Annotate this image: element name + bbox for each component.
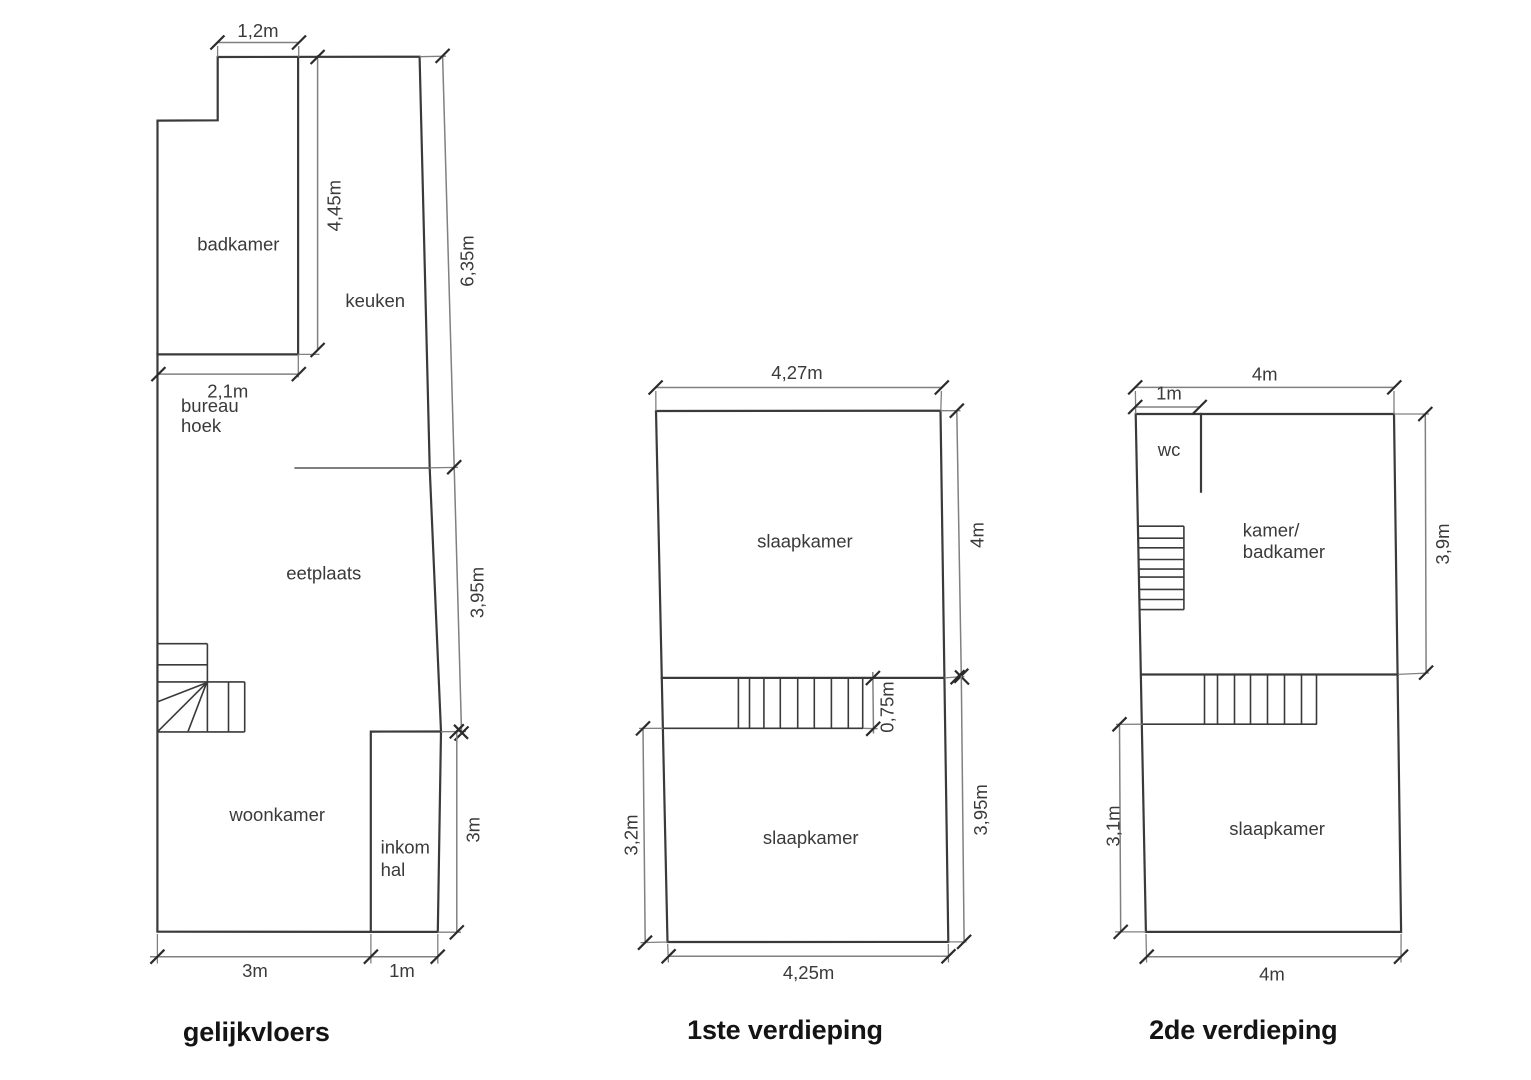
svg-text:slaapkamer: slaapkamer [763,827,859,848]
svg-text:keuken: keuken [345,290,405,311]
svg-text:1ste verdieping: 1ste verdieping [687,1015,883,1045]
svg-text:badkamer: badkamer [1243,541,1325,562]
svg-text:gelijkvloers: gelijkvloers [183,1017,330,1047]
svg-text:slaapkamer: slaapkamer [1229,818,1325,839]
svg-text:2de verdieping: 2de verdieping [1149,1015,1337,1045]
svg-text:1,2m: 1,2m [237,20,278,41]
svg-text:inkom: inkom [381,837,430,858]
svg-text:4m: 4m [1259,964,1285,985]
svg-text:kamer/: kamer/ [1243,520,1300,541]
svg-text:wc: wc [1157,439,1181,460]
svg-text:4m: 4m [1252,364,1278,385]
svg-text:3m: 3m [242,960,268,981]
svg-text:3,95m: 3,95m [467,567,488,618]
svg-text:3,95m: 3,95m [970,784,991,835]
svg-text:4m: 4m [967,522,988,548]
svg-text:3,9m: 3,9m [1432,523,1453,564]
svg-text:3m: 3m [463,817,484,843]
svg-text:badkamer: badkamer [197,234,279,255]
svg-text:0,75m: 0,75m [876,681,897,732]
svg-text:hal: hal [381,859,406,880]
svg-text:eetplaats: eetplaats [286,562,361,583]
svg-text:1m: 1m [1156,382,1182,403]
svg-text:hoek: hoek [181,415,222,436]
svg-text:woonkamer: woonkamer [228,804,325,825]
svg-text:4,45m: 4,45m [324,180,345,231]
svg-text:4,27m: 4,27m [771,362,822,383]
svg-text:6,35m: 6,35m [456,235,477,286]
svg-text:2,1m: 2,1m [207,381,248,402]
svg-text:1m: 1m [389,960,415,981]
svg-text:4,25m: 4,25m [783,962,834,983]
svg-text:slaapkamer: slaapkamer [757,530,853,551]
svg-text:3,1m: 3,1m [1103,805,1124,846]
svg-text:3,2m: 3,2m [621,814,642,855]
